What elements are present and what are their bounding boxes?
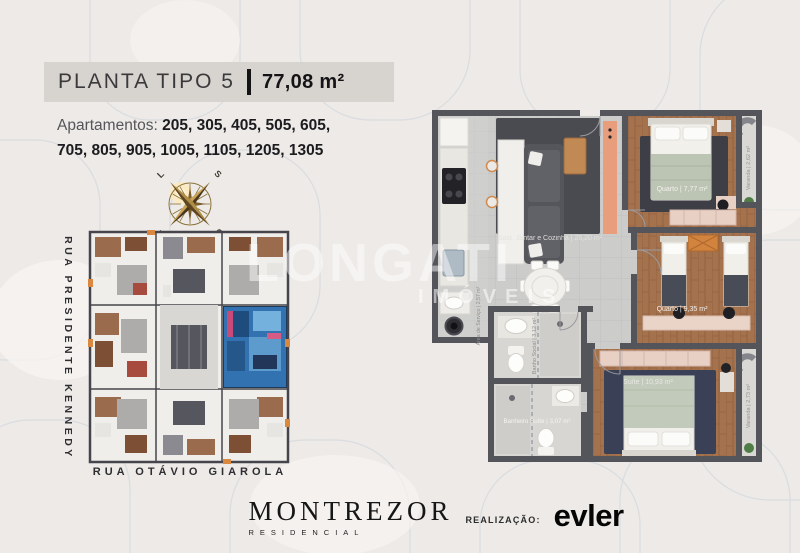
compass-label-s: S xyxy=(212,168,223,179)
plan-sheet: PLANTA TIPO 5 77,08 m² Apartamentos: 205… xyxy=(0,0,800,553)
desk xyxy=(643,316,750,330)
desk-chair xyxy=(723,307,735,319)
title-band: PLANTA TIPO 5 77,08 m² xyxy=(44,62,394,102)
kitchen-sink xyxy=(443,250,464,276)
label-social-bathroom: Banho Social | 3,12 m² xyxy=(532,318,538,375)
apartment-numbers-line2: 705, 805, 905, 1005, 1105, 1205, 1305 xyxy=(57,142,323,159)
wardrobe xyxy=(670,210,736,225)
label-balcony-top: Varanda | 2,62 m² xyxy=(746,146,752,190)
developer-logo-montrezor: MONTREZOR RESIDENCIAL xyxy=(248,498,452,537)
toilet xyxy=(508,354,524,373)
plant xyxy=(744,443,754,453)
wardrobe xyxy=(600,351,710,366)
label-suite: Suíte | 10,93 m² xyxy=(623,379,673,386)
apartment-list-label: Apartamentos: xyxy=(57,117,158,134)
key-plan xyxy=(87,229,291,465)
label-bedroom-middle: Quarto | 9,35 m² xyxy=(657,306,709,313)
page-title: PLANTA TIPO 5 xyxy=(58,70,235,94)
developer-logo-evler: evler xyxy=(554,498,624,534)
key-plan-highlight-unit xyxy=(224,307,287,388)
street-name-bottom: RUA OTÁVIO GIAROLA xyxy=(93,466,287,478)
single-bed xyxy=(660,236,688,306)
compass-label-l: L xyxy=(155,169,166,180)
shower-head xyxy=(509,395,515,401)
single-bed xyxy=(722,236,750,306)
floor-plan: Sala, Jantar e Cozinha | 25,20 m² Quarto… xyxy=(432,110,764,490)
brand-subtitle: RESIDENCIAL xyxy=(248,528,452,537)
sink xyxy=(556,390,574,403)
stool xyxy=(487,161,498,172)
title-divider xyxy=(247,69,251,95)
kitchen xyxy=(440,118,468,286)
coffee-table xyxy=(564,138,586,174)
realization-label: REALIZAÇÃO: xyxy=(465,515,540,525)
brand-name: MONTREZOR xyxy=(248,498,452,525)
label-laundry: Área de Serviço | 2,57 m² xyxy=(475,286,482,345)
apartment-numbers-line1: 205, 305, 405, 505, 605, xyxy=(162,117,330,134)
chair xyxy=(721,363,731,373)
label-balcony-bottom: Varanda | 2,73 m² xyxy=(746,384,752,428)
unit-area: 77,08 m² xyxy=(262,71,344,94)
key-plan-core xyxy=(160,305,218,389)
sideboard xyxy=(498,140,524,264)
sink xyxy=(505,319,527,334)
label-suite-bathroom: Banheiro Suíte | 3,07 m² xyxy=(504,418,571,425)
label-bedroom-top: Quarto | 7,77 m² xyxy=(657,186,709,193)
street-name-left: RUA PRESIDENTE KENNEDY xyxy=(62,236,74,460)
toilet xyxy=(538,429,554,448)
sofa xyxy=(524,144,564,264)
apartment-list: Apartamentos: 205, 305, 405, 505, 605, 7… xyxy=(57,114,402,164)
cooktop xyxy=(442,168,466,204)
label-living: Sala, Jantar e Cozinha | 25,20 m² xyxy=(498,235,603,242)
stool xyxy=(487,197,498,208)
desk-chair xyxy=(718,200,729,211)
footer-branding: MONTREZOR RESIDENCIAL REALIZAÇÃO: evler xyxy=(266,492,606,542)
